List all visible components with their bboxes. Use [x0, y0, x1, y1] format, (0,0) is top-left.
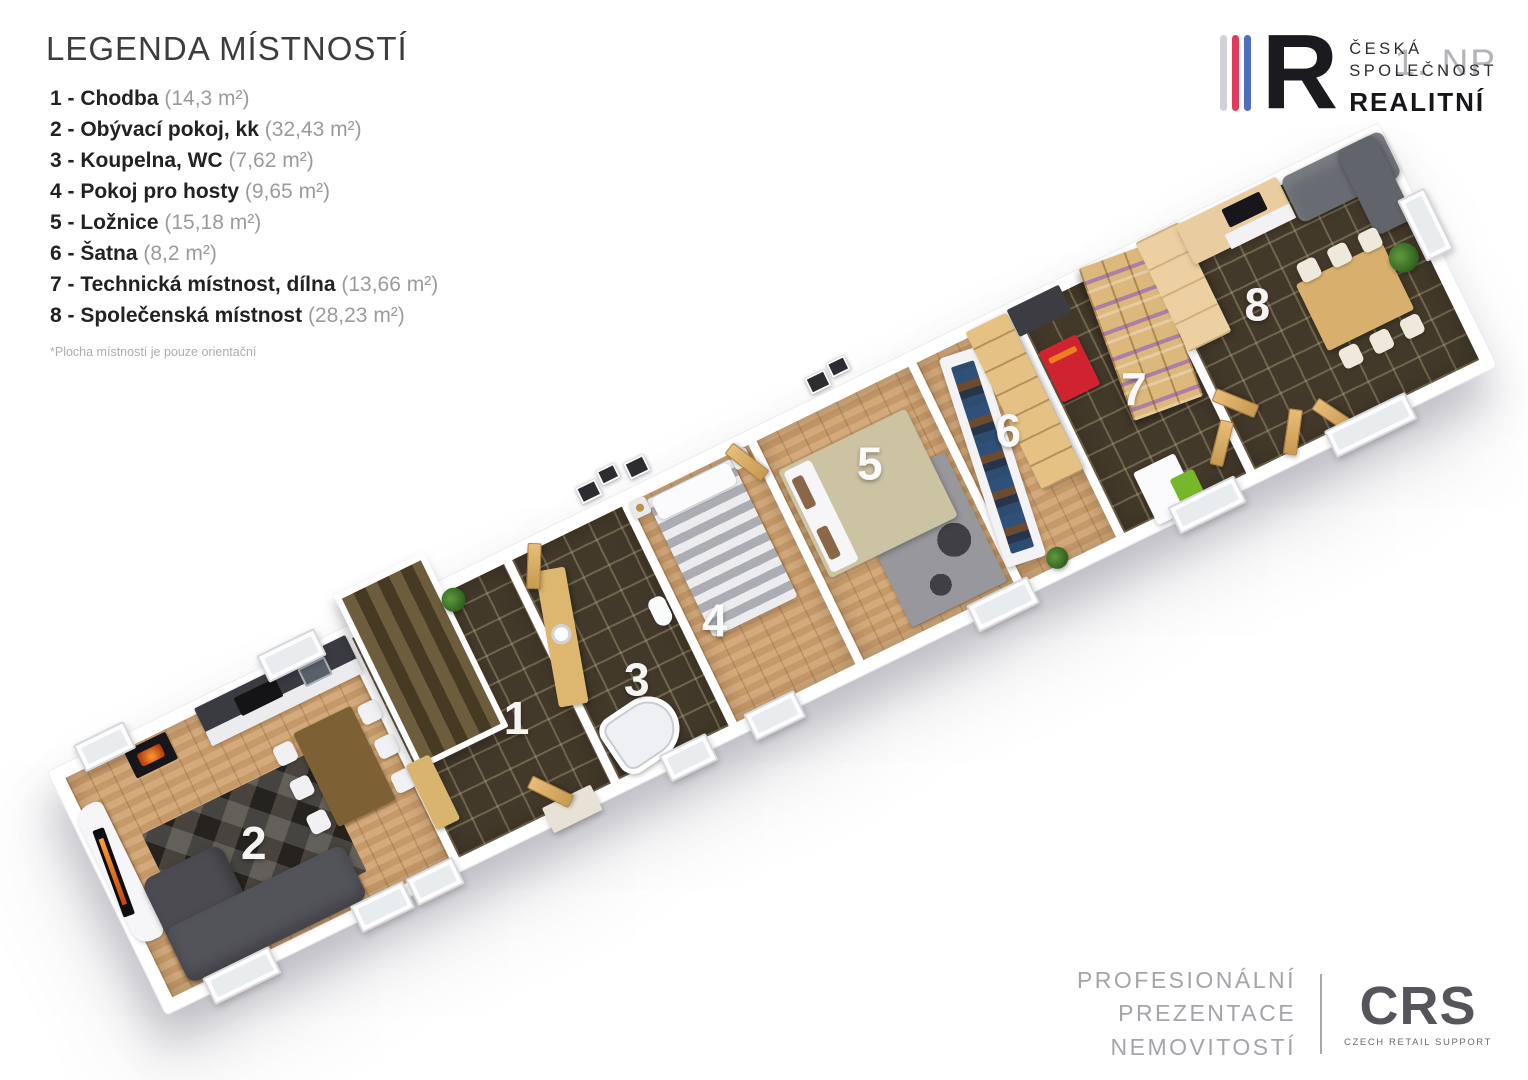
double-bed: [778, 408, 958, 578]
brand-bars-icon: [1220, 30, 1251, 111]
brand-line-1: ČESKÁ: [1349, 38, 1497, 60]
room-number: 5: [857, 441, 883, 487]
room-area: (9,65 m²): [245, 180, 330, 203]
window: [405, 856, 465, 906]
bathroom-vanity: [535, 567, 589, 708]
room-area: (15,18 m²): [164, 211, 261, 234]
wall-picture: [826, 355, 851, 378]
dining-chair: [305, 808, 333, 836]
room-6-walk-in-closet: 6: [917, 318, 1117, 582]
footer-divider: [1320, 974, 1322, 1054]
crs-logo-text: CRS: [1360, 979, 1477, 1033]
fireplace: [124, 732, 178, 779]
room-7-utility-workshop: 7: [1017, 254, 1246, 533]
room-area: (14,3 m²): [164, 87, 249, 110]
corner-sofa: [140, 843, 269, 984]
legend-footnote: *Plocha místností je pouze orientační: [50, 345, 438, 359]
guest-bed: [646, 458, 798, 638]
legend-item: 2 - Obývací pokoj, kk (32,43 m²): [50, 119, 438, 141]
brand-bar-blue: [1244, 35, 1251, 111]
cooktop: [233, 678, 283, 716]
brand-logo: 1. NP R ČESKÁ SPOLEČNOST REALITNÍ: [1220, 30, 1497, 118]
legend: LEGENDA MÍSTNOSTÍ 1 - Chodba (14,3 m²) 2…: [46, 30, 438, 359]
utility-cabinet: [1133, 453, 1200, 525]
legend-item: 4 - Pokoj pro hosty (9,65 m²): [50, 181, 438, 203]
legend-item: 3 - Koupelna, WC (7,62 m²): [50, 150, 438, 172]
kitchen-counter-front: [1225, 203, 1297, 249]
room-number: 7: [1121, 366, 1147, 412]
door-leaf: [1283, 408, 1303, 456]
legend-item: 6 - Šatna (8,2 m²): [50, 243, 438, 265]
window: [73, 721, 136, 773]
kitchen-sink: [297, 656, 333, 687]
bedroom-rug: [849, 452, 1007, 628]
kitchen-counter-front: [205, 658, 363, 746]
brand-line-3: REALITNÍ: [1349, 87, 1497, 118]
room-number: 3: [624, 657, 650, 703]
toilet: [646, 594, 675, 629]
dining-chair: [1368, 327, 1396, 355]
bed-pillows: [650, 462, 738, 521]
dining-chair: [271, 740, 299, 768]
room-number: 6: [995, 407, 1021, 453]
room-area: (13,66 m²): [341, 273, 438, 296]
workbench: [1007, 285, 1072, 337]
dining-chair: [1326, 241, 1354, 269]
sectional-sofa: [1335, 133, 1414, 236]
kitchen-counter: [194, 635, 363, 745]
guest-room-door-leaf: [725, 443, 770, 482]
room-label: 4 - Pokoj pro hosty: [50, 180, 239, 203]
plant: [1384, 238, 1424, 278]
bathtub: [593, 684, 692, 780]
room-area: (7,62 m²): [229, 149, 314, 172]
legend-item: 1 - Chodba (14,3 m²): [50, 88, 438, 110]
dining-chair: [356, 698, 384, 726]
room-label: 3 - Koupelna, WC: [50, 149, 223, 172]
room-label: 6 - Šatna: [50, 242, 138, 265]
hall-cabinet: [405, 754, 460, 830]
wardrobe: [965, 312, 1083, 490]
window: [1167, 475, 1247, 534]
window: [256, 628, 327, 683]
wall-picture: [596, 463, 621, 486]
footer-tagline-line: NEMOVITOSTÍ: [1077, 1031, 1296, 1064]
room-5-bedroom: 5: [757, 367, 1016, 660]
entrance-porch: [542, 785, 603, 834]
door-leaf: [1311, 397, 1357, 434]
sectional-sofa: [1280, 130, 1403, 224]
tv: [92, 827, 135, 918]
clothes-rack: [939, 346, 1047, 568]
room-1-hallway: 1: [352, 564, 611, 857]
nightstand: [729, 447, 753, 471]
footer-tagline: PROFESIONÁLNÍ PREZENTACE NEMOVITOSTÍ: [1077, 964, 1296, 1064]
room-area: (32,43 m²): [265, 118, 362, 141]
dining-chair: [288, 774, 316, 802]
dining-chair: [1337, 342, 1365, 370]
footer-tagline-line: PROFESIONÁLNÍ: [1077, 964, 1296, 997]
room-area: (28,23 m²): [308, 304, 405, 327]
tool-cabinet: [1038, 334, 1100, 403]
recycle-bin: [1169, 468, 1204, 503]
plant: [438, 584, 470, 616]
entrance-door-leaf: [527, 775, 574, 808]
window: [202, 946, 282, 1005]
brand-line-2: SPOLEČNOST: [1349, 60, 1497, 82]
brand-bar-red: [1232, 35, 1239, 111]
room-2-living-room-kitchen: 2: [65, 642, 451, 997]
window: [1324, 392, 1418, 458]
dining-table: [293, 706, 396, 828]
bathroom-door-leaf: [526, 543, 542, 589]
legend-item: 5 - Ložnice (15,18 m²): [50, 212, 438, 234]
room-8-common-room: 8: [1148, 141, 1480, 470]
nightstand: [628, 496, 652, 520]
washbasin: [550, 623, 573, 646]
crs-logo: CRS CZECH RETAIL SUPPORT: [1344, 979, 1492, 1048]
room-4-guest-room: 4: [630, 445, 856, 722]
room-number: 2: [241, 820, 267, 866]
room-number: 4: [702, 597, 728, 643]
dining-chair: [1398, 312, 1426, 340]
window: [966, 576, 1040, 633]
room-3-bathroom: 3: [512, 507, 729, 780]
bed-pillow: [791, 474, 817, 510]
kitchen-counter: [1176, 176, 1296, 265]
window: [659, 733, 719, 783]
room-number: 8: [1244, 282, 1270, 328]
room-label: 2 - Obývací pokoj, kk: [50, 118, 259, 141]
legend-title: LEGENDA MÍSTNOSTÍ: [46, 30, 438, 68]
corner-sofa: [164, 843, 368, 984]
dining-chair: [389, 767, 417, 795]
plant: [1043, 543, 1072, 572]
dining-chair: [1356, 226, 1384, 254]
room-area: (8,2 m²): [143, 242, 217, 265]
brand-monogram-r: R: [1262, 30, 1334, 115]
living-room-rug: [142, 753, 367, 953]
room-label: 1 - Chodba: [50, 87, 159, 110]
legend-item: 7 - Technická místnost, dílna (13,66 m²): [50, 274, 438, 296]
window: [1397, 188, 1454, 262]
bed-pillow: [816, 525, 842, 561]
bed-sheet: [783, 459, 859, 573]
double-door-leaf: [1212, 388, 1260, 418]
room-label: 5 - Ložnice: [50, 211, 159, 234]
dining-chair: [1295, 256, 1323, 284]
hanging-clothes: [951, 360, 1034, 554]
double-door-leaf: [1209, 419, 1234, 467]
cooktop: [1221, 191, 1268, 227]
page-canvas: LEGENDA MÍSTNOSTÍ 1 - Chodba (14,3 m²) 2…: [0, 0, 1528, 1080]
footer-tagline-line: PREZENTACE: [1077, 997, 1296, 1030]
crs-logo-subtext: CZECH RETAIL SUPPORT: [1344, 1037, 1492, 1048]
dining-chair: [373, 732, 401, 760]
brand-text: ČESKÁ SPOLEČNOST REALITNÍ: [1349, 30, 1497, 118]
footer-branding: PROFESIONÁLNÍ PREZENTACE NEMOVITOSTÍ CRS…: [1077, 964, 1492, 1064]
legend-list: 1 - Chodba (14,3 m²) 2 - Obývací pokoj, …: [46, 88, 438, 327]
window: [349, 881, 415, 934]
room-number: 1: [504, 695, 530, 741]
window: [743, 690, 806, 742]
wall-picture: [623, 454, 651, 480]
brand-bar-gray: [1220, 35, 1227, 111]
tv-cabinet: [73, 799, 166, 947]
dining-table: [1296, 243, 1415, 352]
staircase: [334, 552, 509, 770]
wall-picture: [575, 479, 603, 505]
storage-shelf: [1078, 244, 1203, 422]
room-label: 8 - Společenská místnost: [50, 304, 302, 327]
wall-picture: [804, 369, 832, 395]
kitchen-tall-cabinet: [1135, 222, 1232, 353]
legend-item: 8 - Společenská místnost (28,23 m²): [50, 305, 438, 327]
room-label: 7 - Technická místnost, dílna: [50, 273, 336, 296]
